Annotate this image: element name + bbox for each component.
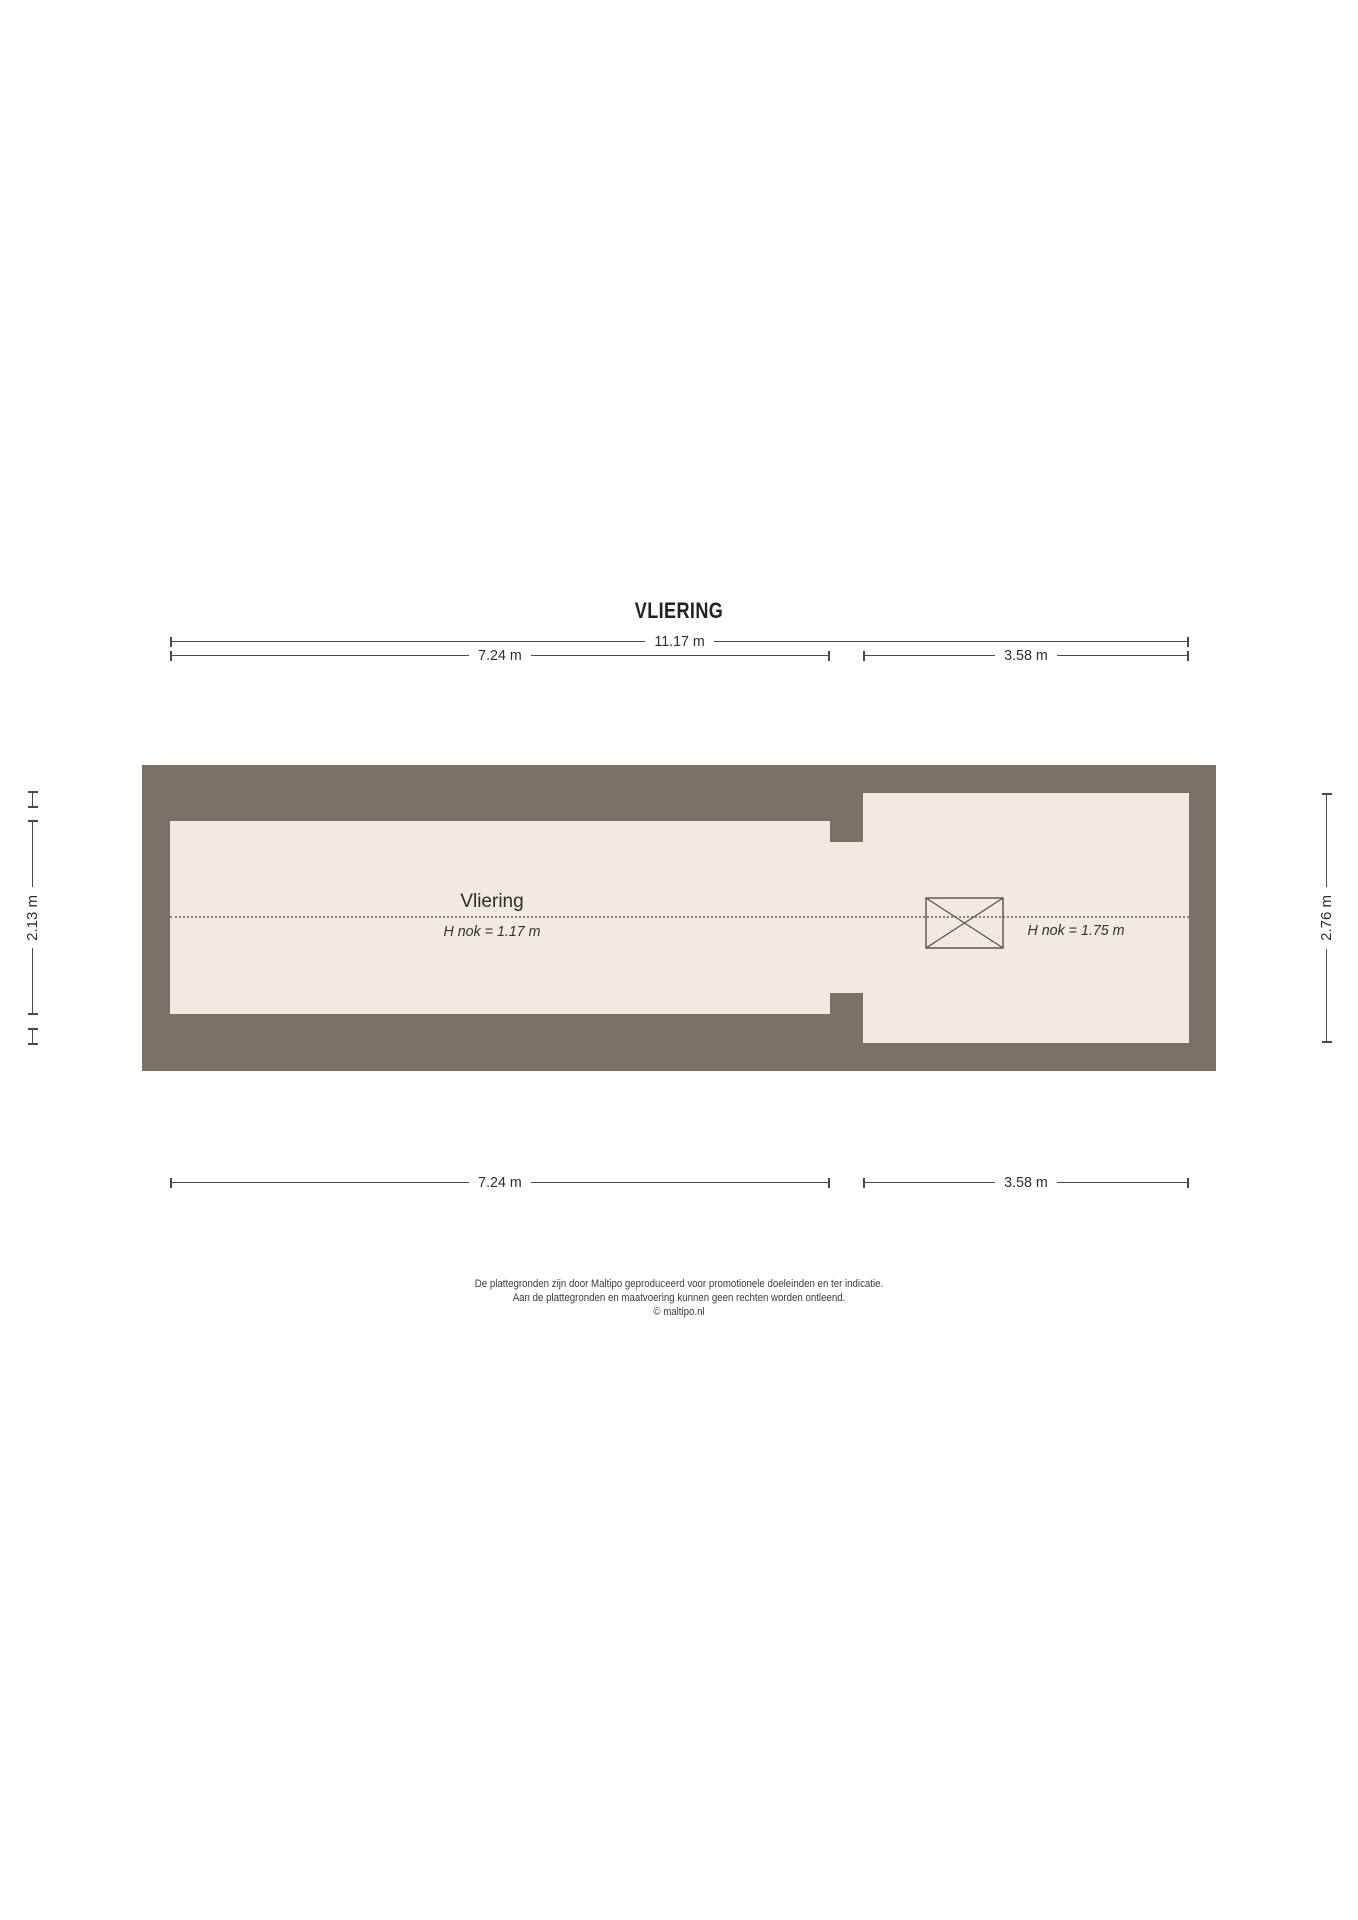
dim-end-tick [1187, 1178, 1189, 1188]
dim-label: 7.24 m [471, 1175, 530, 1190]
room-label-vliering: Vliering [342, 891, 642, 913]
dim-line-segment [32, 948, 34, 1013]
ridge-height-label-right: H nok = 1.75 m [981, 922, 1171, 939]
dim-line-segment [32, 1030, 34, 1043]
footer-line: De plattegronden zijn door Maltipo gepro… [81, 1277, 1276, 1291]
dim-tick-mark-top [25, 791, 40, 808]
dim-tick-mark-bottom [25, 1028, 40, 1045]
footer-disclaimer: De plattegronden zijn door Maltipo gepro… [81, 1277, 1276, 1319]
page-title: VLIERING [635, 598, 723, 624]
dim-line-segment [1057, 1182, 1187, 1184]
dim-line-segment [1326, 949, 1328, 1041]
dim-line-segment [172, 655, 469, 657]
dim-end-tick [28, 1043, 38, 1045]
dim-label: 3.58 m [997, 648, 1056, 663]
dim-label: 2.13 m [25, 887, 40, 949]
dim-left-width-bottom: 7.24 m [170, 1175, 830, 1190]
ridge-height-label-left: H nok = 1.17 m [350, 923, 635, 940]
dim-end-tick [1322, 1041, 1332, 1043]
dim-left-width-top: 7.24 m [170, 648, 830, 663]
dim-label: 11.17 m [647, 634, 713, 649]
dim-line-segment [172, 1182, 469, 1184]
dim-line-segment [1326, 795, 1328, 887]
ridge-dotted-line [170, 916, 1189, 918]
dim-end-tick [1187, 637, 1189, 647]
dim-line-segment [714, 641, 1187, 643]
dim-label: 7.24 m [471, 648, 530, 663]
dim-end-tick [828, 1178, 830, 1188]
dim-label: 3.58 m [997, 1175, 1056, 1190]
dim-line-segment [531, 655, 828, 657]
dim-label: 2.76 m [1319, 887, 1334, 949]
dim-line-segment [865, 655, 995, 657]
dim-line-segment [172, 641, 645, 643]
floorplan-page: VLIERING 11.17 m 7.24 m 3.58 m Vliering … [0, 0, 1358, 1920]
dim-end-tick [1187, 651, 1189, 661]
dim-line-segment [32, 793, 34, 806]
room-right-floor [863, 793, 1189, 1043]
dim-end-tick [828, 651, 830, 661]
dim-line-segment [531, 1182, 828, 1184]
dim-right-height: 2.76 m [1319, 793, 1334, 1043]
footer-line: © maltipo.nl [81, 1305, 1276, 1319]
dim-right-width-top: 3.58 m [863, 648, 1189, 663]
dim-left-height: 2.13 m [25, 820, 40, 1015]
roof-window-icon [925, 897, 1004, 949]
dim-line-segment [32, 822, 34, 887]
footer-line: Aan de plattegronden en maatvoering kunn… [81, 1291, 1276, 1305]
dim-right-width-bottom: 3.58 m [863, 1175, 1189, 1190]
dim-end-tick [28, 1013, 38, 1015]
dim-line-segment [1057, 655, 1187, 657]
dim-end-tick [28, 806, 38, 808]
dim-line-segment [865, 1182, 995, 1184]
